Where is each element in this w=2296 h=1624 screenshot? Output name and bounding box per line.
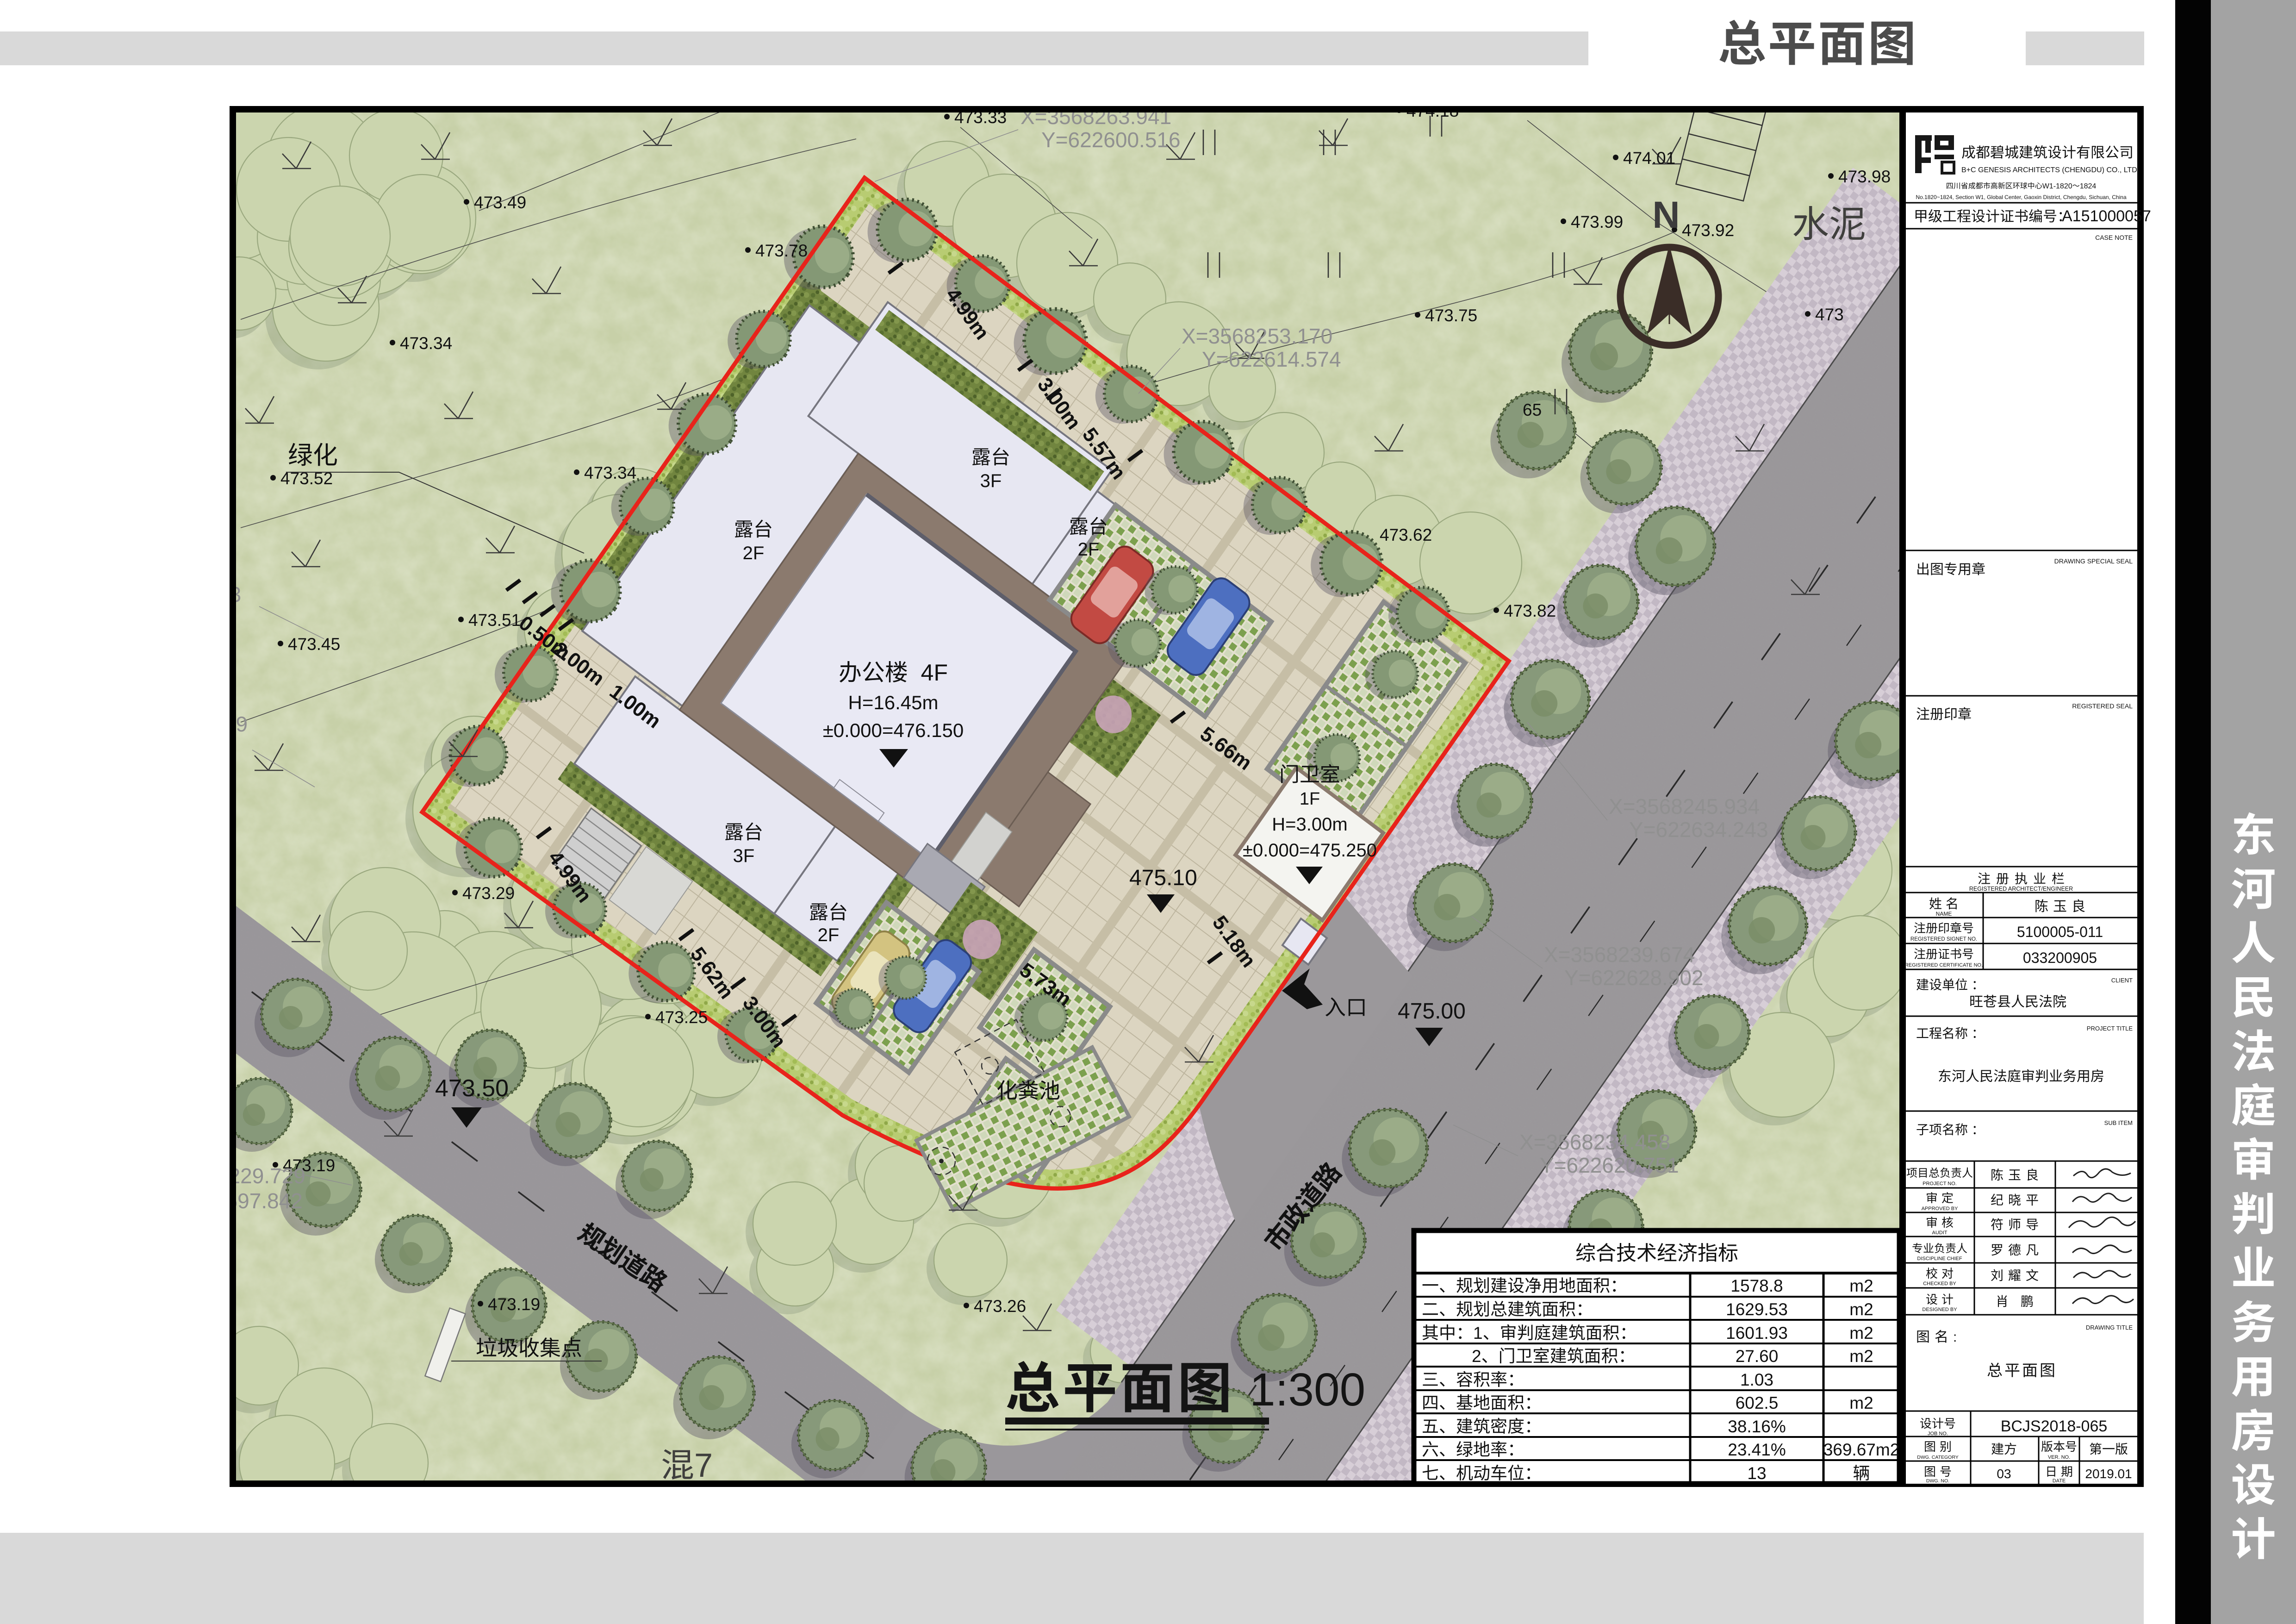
svg-text:03: 03 (1997, 1467, 2011, 1481)
svg-text:PROJECT NO.: PROJECT NO. (1923, 1181, 1957, 1187)
svg-text:m2: m2 (1849, 1276, 1873, 1295)
svg-text:475.10: 475.10 (1129, 866, 1197, 890)
svg-text:473.50: 473.50 (435, 1075, 509, 1102)
svg-text:473.25: 473.25 (655, 1008, 708, 1027)
svg-text:2: 2 (1472, 1347, 1481, 1366)
svg-text:Y=622600.516: Y=622600.516 (1041, 128, 1181, 152)
svg-text:475.00: 475.00 (1398, 999, 1466, 1024)
svg-text:Y=622620.751: Y=622620.751 (1540, 1153, 1679, 1177)
svg-text:m2: m2 (1849, 1393, 1873, 1412)
svg-text:Y=622628.902: Y=622628.902 (1564, 966, 1704, 990)
svg-text:38.16%: 38.16% (1728, 1417, 1786, 1436)
svg-text:SUB ITEM: SUB ITEM (2104, 1119, 2133, 1126)
svg-text:REGISTERED CERTIFICATE NO.: REGISTERED CERTIFICATE NO. (1905, 962, 1983, 968)
svg-text:PROJECT TITLE: PROJECT TITLE (2087, 1025, 2133, 1032)
svg-text:473.34: 473.34 (400, 334, 452, 353)
svg-text:B+C GENESIS ARCHITECTS (CHENGD: B+C GENESIS ARCHITECTS (CHENGDU) CO., LT… (1961, 166, 2137, 174)
svg-text:CHECKED BY: CHECKED BY (1923, 1281, 1956, 1287)
svg-text:X=3568253.170: X=3568253.170 (1182, 324, 1332, 348)
svg-text:1578.8: 1578.8 (1730, 1276, 1783, 1295)
svg-text:Y=622634.243: Y=622634.243 (1629, 818, 1768, 842)
svg-text:1601.93: 1601.93 (1726, 1324, 1788, 1343)
svg-text:DISCIPLINE CHIEF: DISCIPLINE CHIEF (1917, 1256, 1962, 1262)
svg-text:2F: 2F (818, 925, 840, 945)
svg-text:A151000057: A151000057 (2062, 207, 2151, 225)
svg-text:033200905: 033200905 (2023, 949, 2097, 966)
svg-text:1824: 1824 (2080, 182, 2097, 190)
svg-text:NAME: NAME (1936, 911, 1952, 917)
svg-text:473.98: 473.98 (1838, 167, 1891, 186)
svg-text:473.29: 473.29 (462, 884, 515, 903)
svg-text:473.19: 473.19 (488, 1295, 540, 1314)
svg-text:±0.000=476.150: ±0.000=476.150 (823, 719, 964, 741)
svg-text:3F: 3F (980, 471, 1002, 491)
svg-text:m2: m2 (1849, 1347, 1873, 1366)
svg-text:REGISTERED SIGNET NO.: REGISTERED SIGNET NO. (1910, 937, 1977, 942)
svg-text:13: 13 (1747, 1464, 1766, 1483)
svg-text:65: 65 (1523, 400, 1542, 419)
svg-text::: : (1953, 1330, 1957, 1345)
svg-text:1.03: 1.03 (1740, 1370, 1773, 1389)
svg-text:27.60: 27.60 (1736, 1347, 1779, 1366)
svg-text:473.45: 473.45 (288, 635, 340, 654)
svg-text:DWG. CATEGORY: DWG. CATEGORY (1917, 1455, 1958, 1460)
svg-text:H=16.45m: H=16.45m (848, 692, 939, 713)
svg-text:VER. NO.: VER. NO. (2048, 1455, 2070, 1460)
svg-text:473.49: 473.49 (474, 193, 526, 212)
svg-text:AUDIT: AUDIT (1932, 1230, 1948, 1236)
svg-text:473.78: 473.78 (755, 241, 808, 260)
svg-text:W1-1820: W1-1820 (2042, 182, 2072, 190)
svg-text:±0.000=475.250: ±0.000=475.250 (1243, 840, 1377, 861)
svg-text:H=3.00m: H=3.00m (1272, 814, 1347, 835)
svg-text:X=3568234.458: X=3568234.458 (1519, 1130, 1670, 1154)
svg-text:473.75: 473.75 (1425, 306, 1477, 325)
svg-text:DESIGNED BY: DESIGNED BY (1922, 1307, 1957, 1312)
svg-text:1629.53: 1629.53 (1726, 1300, 1788, 1319)
svg-text:473.99: 473.99 (1571, 212, 1623, 231)
svg-text:23.41%: 23.41% (1728, 1440, 1786, 1459)
svg-text:X=3568245.934: X=3568245.934 (1609, 794, 1760, 818)
svg-text:REGISTERED ARCHITECT/ENGINEER: REGISTERED ARCHITECT/ENGINEER (1969, 886, 2073, 892)
svg-text:DWG. NO.: DWG. NO. (1926, 1478, 1949, 1484)
svg-text:5100005-011: 5100005-011 (2017, 924, 2103, 940)
svg-text:473.82: 473.82 (1504, 601, 1556, 620)
svg-text:BCJS2018-065: BCJS2018-065 (2001, 1418, 2108, 1435)
svg-text:m2: m2 (1849, 1300, 1873, 1319)
svg-text:APPROVED BY: APPROVED BY (1922, 1206, 1959, 1212)
svg-text:1:300: 1:300 (1250, 1364, 1365, 1416)
svg-text:CLIENT: CLIENT (2111, 977, 2133, 984)
svg-text:369.67m2: 369.67m2 (1823, 1440, 1900, 1459)
svg-text:2F: 2F (1078, 539, 1100, 560)
svg-text:4F: 4F (908, 660, 948, 686)
svg-text:CASE NOTE: CASE NOTE (2095, 234, 2133, 241)
svg-text:X=3568239.674: X=3568239.674 (1544, 943, 1695, 967)
svg-text:2F: 2F (743, 543, 765, 563)
svg-text:N: N (1652, 194, 1680, 236)
svg-text:DATE: DATE (2053, 1478, 2066, 1484)
svg-text:473.26: 473.26 (974, 1297, 1026, 1316)
svg-text:m2: m2 (1849, 1324, 1873, 1343)
svg-text:No.1820~1824, Section W1, Glob: No.1820~1824, Section W1, Global Center,… (1916, 194, 2127, 200)
svg-text:473.92: 473.92 (1682, 221, 1734, 240)
svg-text:DRAWING SPECIAL SEAL: DRAWING SPECIAL SEAL (2054, 557, 2133, 565)
svg-text:602.5: 602.5 (1736, 1393, 1779, 1412)
svg-text:REGISTERED SEAL: REGISTERED SEAL (2072, 702, 2133, 710)
svg-text:3F: 3F (733, 846, 755, 866)
svg-text:474.01: 474.01 (1623, 149, 1675, 168)
svg-text:7: 7 (694, 1447, 713, 1484)
svg-text:473: 473 (1815, 305, 1844, 324)
svg-text:DRAWING TITLE: DRAWING TITLE (2086, 1324, 2133, 1331)
svg-text:1F: 1F (1300, 789, 1320, 809)
svg-text:JOB NO.: JOB NO. (1928, 1431, 1948, 1437)
svg-text:Y=622614.574: Y=622614.574 (1202, 347, 1341, 371)
svg-text:2019.01: 2019.01 (2085, 1467, 2132, 1481)
svg-text:473.51: 473.51 (468, 611, 521, 630)
svg-text:473.62: 473.62 (1380, 525, 1432, 544)
svg-text:473.34: 473.34 (584, 463, 636, 482)
svg-text:1: 1 (1473, 1324, 1483, 1343)
